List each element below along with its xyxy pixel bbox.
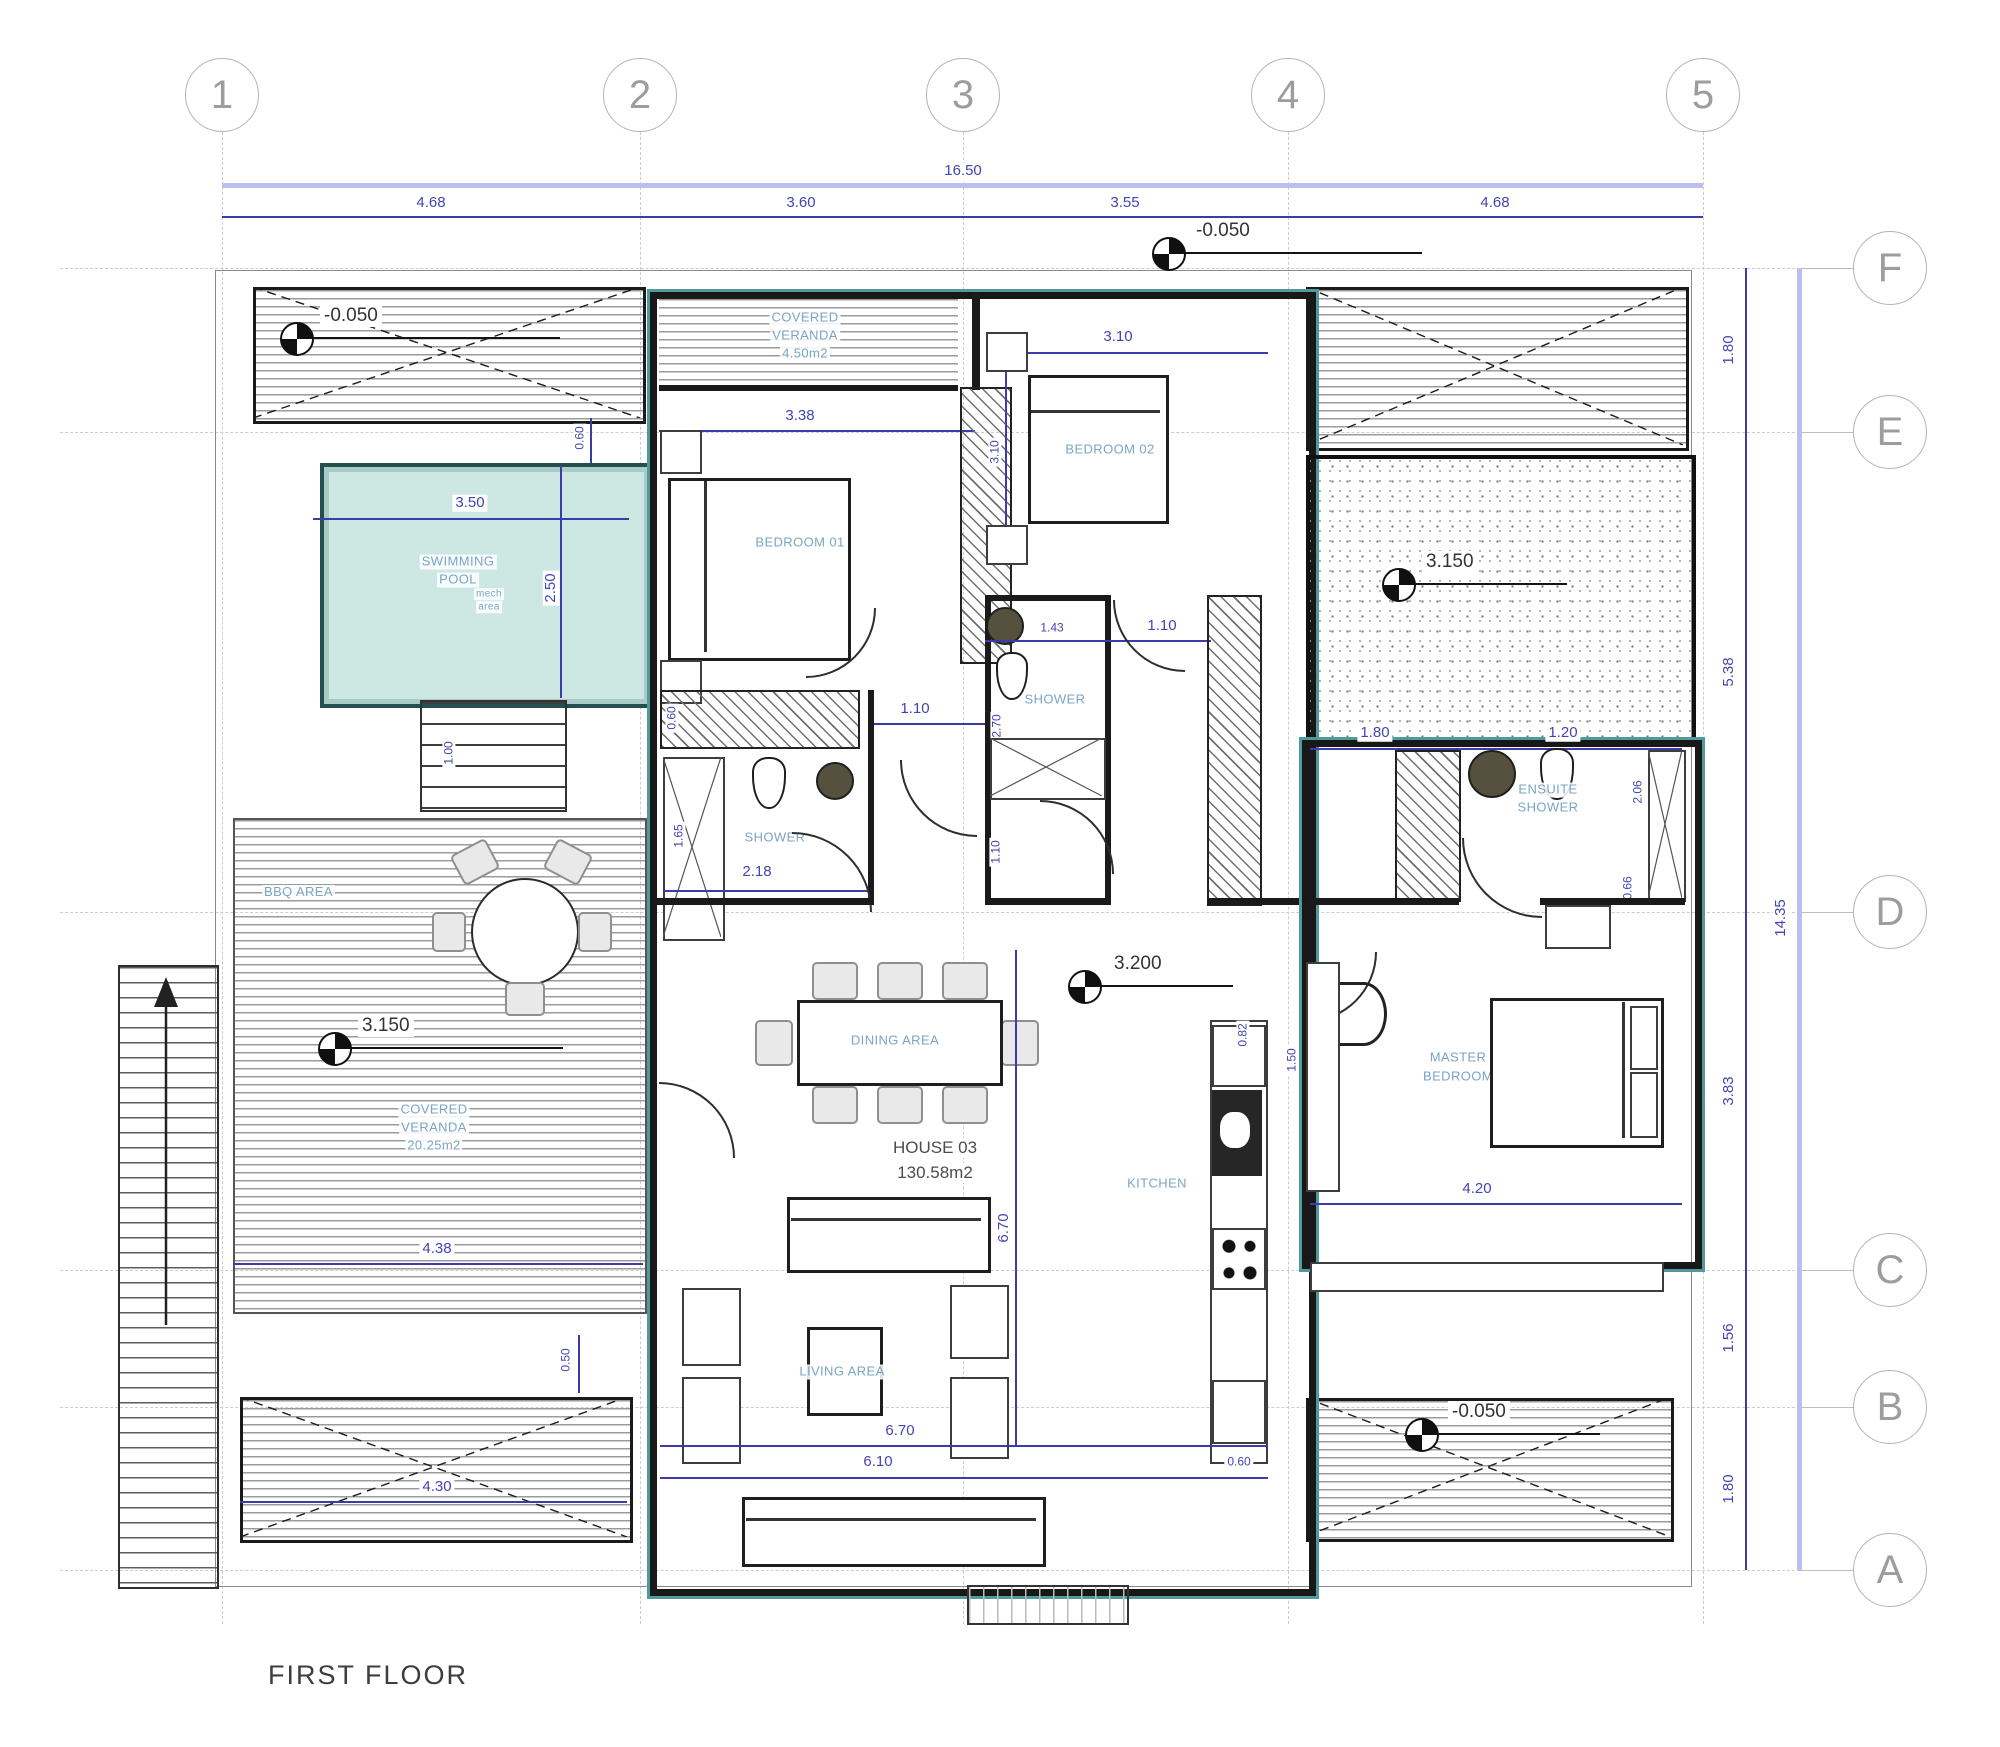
level-marker-line xyxy=(1435,1433,1600,1435)
grid-bubble-label: C xyxy=(1876,1248,1905,1293)
terrace-b-dim-line xyxy=(240,1501,627,1503)
kitchen-cooktop xyxy=(1212,1228,1266,1290)
level-gravel: 3.150 xyxy=(1422,551,1478,573)
dining-chair xyxy=(942,962,988,1000)
desk-chair xyxy=(1340,982,1387,1046)
grid-bubble-label: 2 xyxy=(629,73,651,118)
terrace-a-dim-line xyxy=(233,1263,643,1265)
grid-bubble-row-b: B xyxy=(1853,1370,1927,1444)
level-bottom-right: -0.050 xyxy=(1448,1401,1510,1423)
wall-d-row-b xyxy=(985,898,1111,905)
dim-pool-height: 2.50 xyxy=(543,570,560,605)
right-overall-dim-line xyxy=(1797,268,1802,1570)
bed-pillow-line xyxy=(1031,410,1160,413)
dim-kitchen-b: 1.50 xyxy=(1285,1045,1298,1074)
wall-d-row-a xyxy=(657,898,873,905)
grid-bubble-row-e: E xyxy=(1853,395,1927,469)
grid-line-col-5 xyxy=(1703,132,1704,1624)
pillow xyxy=(1630,1072,1658,1138)
dim-total-width: 16.50 xyxy=(941,163,985,180)
bedroom01-dim-line xyxy=(659,430,975,432)
bedroom01-label: BEDROOM 01 xyxy=(753,536,846,551)
hall-b-dim-line xyxy=(874,723,985,725)
dim-ensuite-depth: 2.06 xyxy=(1631,777,1644,806)
veranda-left-label: COVERED xyxy=(398,1103,469,1118)
closet-shower-left xyxy=(660,690,860,749)
dim-shower-left-depth: 1.65 xyxy=(672,821,685,850)
drawing-title: FIRST FLOOR xyxy=(268,1660,468,1691)
dim-ensuite-a: 1.80 xyxy=(1357,725,1392,742)
level-interior: 3.200 xyxy=(1110,953,1166,975)
grid-bubble-label: B xyxy=(1877,1385,1904,1430)
armchair xyxy=(950,1285,1009,1359)
sink-basin xyxy=(816,762,854,800)
bedroom02-depth-dim-line xyxy=(1005,365,1007,540)
level-marker-icon xyxy=(318,1032,352,1066)
nightstand xyxy=(986,332,1028,372)
veranda-top-label: VERANDA xyxy=(770,329,840,344)
dim-row-f-e: 1.80 xyxy=(1721,332,1738,367)
interior-height-dim-line xyxy=(1015,950,1017,1445)
level-marker-icon xyxy=(1382,568,1416,602)
grid-bubble-label: D xyxy=(1876,890,1905,935)
level-marker-icon xyxy=(1068,970,1102,1004)
sofa-living xyxy=(742,1497,1046,1567)
wall-d-row-c xyxy=(1207,898,1302,905)
deck-top-right-x xyxy=(1306,287,1683,445)
dim-interior-height: 6.70 xyxy=(996,1210,1013,1245)
shower-ensuite-basin xyxy=(1468,750,1516,798)
grid-bubble-col-2: 2 xyxy=(603,58,677,132)
grid-bubble-label: 3 xyxy=(952,73,974,118)
grid-bubble-row-f: F xyxy=(1853,231,1927,305)
armchair xyxy=(682,1377,741,1464)
dim-terrace-b: 4.30 xyxy=(419,1479,454,1496)
wall-veranda-bedroom01 xyxy=(659,385,958,391)
dim-master-width: 4.20 xyxy=(1459,1181,1494,1198)
kitchen-unit xyxy=(1212,1380,1266,1444)
dim-col-3-4: 3.55 xyxy=(1107,195,1142,212)
wardrobe-kitchen xyxy=(1207,595,1262,906)
deck-top-left-x xyxy=(253,287,640,418)
dining-chair xyxy=(755,1020,793,1066)
grid-bubble-col-1: 1 xyxy=(185,58,259,132)
bbq-table xyxy=(471,878,579,986)
grid-bubble-row-d: D xyxy=(1853,875,1927,949)
top-segment-dim-line xyxy=(222,216,1703,218)
dim-living-b: 6.10 xyxy=(860,1454,895,1471)
swimming-pool-label: SWIMMING xyxy=(420,555,497,570)
dim-pool-steps: 1.00 xyxy=(442,738,455,767)
top-overall-dim-line xyxy=(222,183,1703,188)
dim-col-1-2: 4.68 xyxy=(413,195,448,212)
stairs-direction-arrow xyxy=(140,975,192,1335)
sofa-back-line xyxy=(791,1218,981,1221)
grid-bubble-col-4: 4 xyxy=(1251,58,1325,132)
bbq-area-label: BBQ AREA xyxy=(262,885,335,900)
dim-shower-mid-width: 1.43 xyxy=(1037,621,1066,634)
dim-shower-mid-depth: 2.70 xyxy=(990,711,1003,740)
cupboard-ensuite-x xyxy=(1648,750,1682,898)
dim-living-a: 6.70 xyxy=(882,1423,917,1440)
level-marker-line xyxy=(1098,985,1233,987)
level-marker-line xyxy=(1412,583,1567,585)
dim-pool-offset: 0.60 xyxy=(573,423,586,452)
kitchen-sink-bowl xyxy=(1220,1112,1250,1148)
bench xyxy=(1545,905,1611,949)
dim-hall-b: 1.10 xyxy=(897,701,932,718)
master-label: BEDROOM xyxy=(1421,1070,1495,1085)
dim-row-b-a: 1.80 xyxy=(1721,1471,1738,1506)
kitchen-label: KITCHEN xyxy=(1125,1177,1189,1192)
mech-area-label: mech xyxy=(474,588,504,600)
grid-bubble-label: 1 xyxy=(211,73,233,118)
swimming-pool-label: POOL xyxy=(437,573,479,588)
wall-ensuite-master-b xyxy=(1540,898,1685,905)
living-label: LIVING AREA xyxy=(797,1365,886,1380)
veranda-top-label: COVERED xyxy=(769,311,840,326)
pool-height-dim-line xyxy=(560,466,562,698)
row-leader-f xyxy=(1798,268,1853,269)
shower-mid-label: SHOWER xyxy=(1023,693,1088,708)
dim-living-offset: 0.60 xyxy=(1224,1455,1253,1468)
level-top-left: -0.050 xyxy=(320,305,382,327)
grid-bubble-label: F xyxy=(1878,246,1902,291)
master-dim-line xyxy=(1310,1203,1682,1205)
grid-bubble-col-5: 5 xyxy=(1666,58,1740,132)
dining-chair xyxy=(877,1086,923,1124)
level-top-right: -0.050 xyxy=(1192,220,1254,242)
dresser xyxy=(1306,962,1340,1192)
bedroom02-dim-line xyxy=(1013,352,1268,354)
bed-pillow-line xyxy=(704,481,707,652)
sofa-back-line xyxy=(746,1518,1036,1521)
dim-shower-left-offset: 0.60 xyxy=(665,703,678,732)
level-marker-icon xyxy=(1405,1418,1439,1452)
pillow xyxy=(1630,1006,1658,1070)
bedroom02-label: BEDROOM 02 xyxy=(1063,443,1156,458)
house-name: HOUSE 03 xyxy=(891,1138,979,1158)
level-marker-line xyxy=(1182,252,1422,254)
dim-shower-left-width: 2.18 xyxy=(739,864,774,881)
dim-hall-c: 1.10 xyxy=(989,837,1002,866)
dining-chair xyxy=(1001,1020,1039,1066)
dim-bedroom01-width: 3.38 xyxy=(782,408,817,425)
house-area: 130.58m2 xyxy=(895,1163,975,1183)
wall-shower-mid-north xyxy=(985,595,1111,601)
deck-bottom-left-x xyxy=(240,1397,627,1537)
bbq-chair xyxy=(578,912,612,952)
bbq-chair xyxy=(505,982,545,1016)
bench-row xyxy=(1310,1262,1664,1292)
grid-line-row-f xyxy=(60,268,1850,269)
row-leader-b xyxy=(1798,1407,1853,1408)
level-marker-line xyxy=(348,1047,563,1049)
dim-terrace-offset: 0.50 xyxy=(559,1345,572,1374)
dim-ensuite-b: 1.20 xyxy=(1545,725,1580,742)
level-marker-line xyxy=(310,337,560,339)
dim-col-4-5: 4.68 xyxy=(1477,195,1512,212)
level-veranda: 3.150 xyxy=(358,1015,414,1037)
dim-total-height: 14.35 xyxy=(1773,896,1790,940)
wall-ensuite-master-a xyxy=(1309,898,1459,905)
dim-row-c-b: 1.56 xyxy=(1721,1320,1738,1355)
living-a-dim-line xyxy=(660,1445,1268,1447)
pool-width-dim-line xyxy=(313,518,629,520)
grid-bubble-col-3: 3 xyxy=(926,58,1000,132)
grid-bubble-row-a: A xyxy=(1853,1533,1927,1607)
dim-bedroom02-width: 3.10 xyxy=(1100,329,1135,346)
mech-area-label: area xyxy=(476,601,502,613)
bbq-chair xyxy=(432,912,466,952)
grid-bubble-label: E xyxy=(1877,410,1904,455)
closet-ensuite xyxy=(1395,750,1461,902)
right-segment-dim-line xyxy=(1745,268,1747,1570)
sofa-dining xyxy=(787,1197,991,1273)
dim-row-d-c: 3.83 xyxy=(1721,1073,1738,1108)
ensuite-label: SHOWER xyxy=(1516,801,1581,816)
dim-terrace-a: 4.38 xyxy=(419,1241,454,1258)
row-leader-a xyxy=(1798,1570,1853,1571)
grid-bubble-label: A xyxy=(1877,1548,1904,1593)
grid-bubble-label: 4 xyxy=(1277,73,1299,118)
veranda-left-label: VERANDA xyxy=(399,1121,469,1136)
bed-pillow-line xyxy=(1622,1002,1625,1138)
dim-bedroom02-depth: 3.10 xyxy=(988,437,1001,466)
nightstand xyxy=(660,430,702,474)
shower-tray-x xyxy=(990,738,1102,796)
living-offset-dim-line xyxy=(1210,1477,1268,1479)
dining-chair xyxy=(877,962,923,1000)
dining-chair xyxy=(812,962,858,1000)
row-leader-e xyxy=(1798,432,1853,433)
row-leader-d xyxy=(1798,912,1853,913)
floor-plan-canvas: 1 2 3 4 5 F E D C B A 16.50 4.68 3.60 3.… xyxy=(0,0,2000,1747)
grid-bubble-row-c: C xyxy=(1853,1233,1927,1307)
ensuite-label: ENSUITE xyxy=(1516,783,1579,798)
dim-col-2-3: 3.60 xyxy=(783,195,818,212)
terrace-offset-dim-line xyxy=(578,1335,580,1393)
level-marker-icon xyxy=(1152,237,1186,271)
grid-bubble-label: 5 xyxy=(1692,73,1714,118)
living-b-dim-line xyxy=(660,1477,1210,1479)
dim-row-e-d: 5.38 xyxy=(1721,654,1738,689)
row-leader-c xyxy=(1798,1270,1853,1271)
dim-pool-width: 3.50 xyxy=(452,495,487,512)
nightstand xyxy=(986,525,1028,565)
veranda-top-label: 4.50m2 xyxy=(780,347,830,362)
pool-offset-dim-line xyxy=(590,418,592,463)
master-label: MASTER xyxy=(1428,1051,1489,1066)
dining-chair xyxy=(942,1086,988,1124)
veranda-left-label: 20.25m2 xyxy=(405,1139,462,1154)
dining-chair xyxy=(812,1086,858,1124)
armchair xyxy=(682,1288,741,1366)
dim-kitchen-a: 0.82 xyxy=(1236,1020,1249,1049)
level-marker-icon xyxy=(280,322,314,356)
wall-bedrooms xyxy=(972,292,980,390)
gravel-court xyxy=(1306,455,1696,746)
shower-mid-dim-line xyxy=(985,640,1111,642)
entrance-porch xyxy=(967,1585,1129,1625)
dining-label: DINING AREA xyxy=(849,1034,941,1049)
